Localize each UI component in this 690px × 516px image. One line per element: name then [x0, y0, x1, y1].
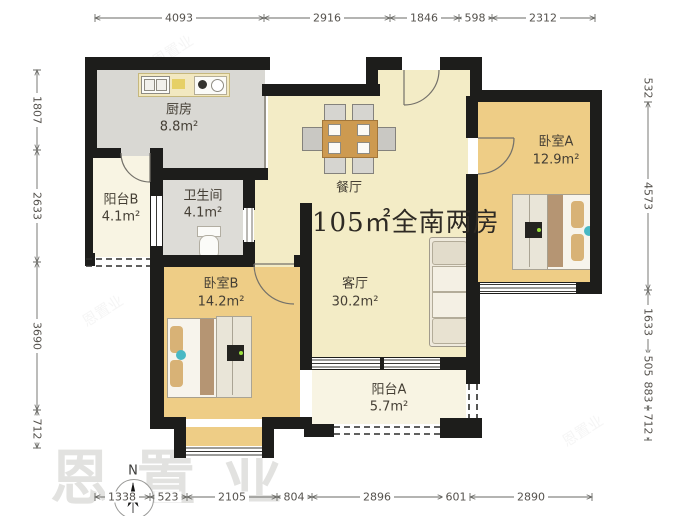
- dim-label: 712: [643, 411, 654, 438]
- dim-label: 4093: [162, 13, 196, 24]
- watermark-diagonal: 恩置业: [78, 290, 127, 332]
- room-label-bathroom: 卫生间: [183, 190, 222, 203]
- dim-label: 3690: [32, 319, 43, 353]
- room-label-bedroom-a: 卧室A: [539, 136, 574, 149]
- room-label-living: 客厅: [342, 278, 368, 291]
- dim-label: 2633: [32, 189, 43, 223]
- bed-blanket: [200, 319, 214, 395]
- dim-label: 4573: [643, 179, 654, 213]
- tv-indicator: [239, 351, 243, 355]
- dim-label: 1633: [643, 305, 654, 339]
- wall: [85, 57, 97, 158]
- wall: [300, 357, 478, 370]
- room-label-balcony-b: 阳台B: [104, 194, 139, 207]
- watermark-diagonal: 恩置业: [558, 410, 607, 452]
- pillow: [571, 234, 584, 261]
- room-area-bedroom-b: 14.2m²: [198, 296, 245, 309]
- stove-burner: [198, 80, 207, 89]
- dining-chair: [302, 127, 323, 151]
- place-setting: [328, 142, 341, 154]
- wall: [85, 155, 93, 257]
- dim-label: 523: [155, 492, 182, 503]
- room-area-balcony-a: 5.7m²: [370, 401, 409, 414]
- wall: [150, 168, 268, 180]
- sofa-cushion: [432, 266, 467, 292]
- wall: [590, 90, 602, 294]
- dim-label: 598: [462, 13, 489, 24]
- wall: [440, 418, 482, 438]
- room-label-dining: 餐厅: [336, 182, 362, 195]
- wall: [466, 96, 478, 138]
- pillow: [170, 326, 183, 353]
- bed-blanket: [548, 195, 563, 267]
- wall: [174, 417, 186, 458]
- dining-chair: [375, 127, 396, 151]
- wall: [85, 253, 95, 266]
- dim-label: 1846: [407, 13, 441, 24]
- wall: [243, 180, 255, 210]
- tv-indicator: [537, 228, 541, 232]
- room-label-balcony-a: 阳台A: [372, 384, 407, 397]
- wall: [300, 203, 312, 370]
- room-area-living: 30.2m²: [332, 296, 379, 309]
- dim-label: 2916: [310, 13, 344, 24]
- dim-label: 601: [443, 492, 470, 503]
- floorplan-canvas: 恩置业 恩置业 恩置业 恩置业 恩置业: [0, 0, 690, 516]
- stove-burner: [211, 79, 224, 92]
- sink-basin: [144, 79, 155, 91]
- compass-north-label: N: [128, 464, 138, 479]
- wall: [85, 57, 270, 70]
- dim-label: 883: [643, 379, 654, 406]
- dim-label: 2896: [360, 492, 394, 503]
- place-setting: [357, 142, 370, 154]
- dim-label: 505: [643, 353, 654, 380]
- dim-label: 1338: [105, 492, 139, 503]
- balcony-b-railing: [86, 259, 150, 266]
- dim-label: 532: [643, 75, 654, 102]
- corridor-floor: [252, 180, 302, 267]
- room-label-bedroom-b: 卧室B: [204, 278, 239, 291]
- dim-label: 2105: [215, 492, 249, 503]
- room-label-kitchen: 厨房: [166, 104, 192, 117]
- dim-label: 712: [32, 416, 43, 443]
- bedroom-b-bay-floor: [186, 427, 262, 447]
- dim-label: 2312: [526, 13, 560, 24]
- wall: [150, 255, 164, 429]
- sink-basin: [156, 79, 167, 91]
- kitchen-dining-edge: [264, 94, 266, 170]
- wall: [150, 148, 163, 267]
- bed-cushion: [176, 350, 186, 360]
- wall: [262, 84, 380, 96]
- wall: [466, 294, 480, 384]
- room-area-kitchen: 8.8m²: [160, 121, 199, 134]
- place-setting: [328, 124, 341, 136]
- wall: [93, 148, 121, 158]
- place-setting: [357, 124, 370, 136]
- wall: [466, 282, 602, 294]
- room-area-balcony-b: 4.1m²: [102, 211, 141, 224]
- sofa-cushion: [432, 292, 467, 318]
- wall: [470, 90, 602, 102]
- wall: [150, 255, 254, 267]
- page-title: 105㎡全南两房: [312, 202, 500, 239]
- dim-label: 1807: [32, 93, 43, 127]
- sofa-cushion: [432, 241, 467, 265]
- wall: [366, 57, 402, 70]
- pillow: [571, 201, 584, 228]
- wall: [304, 424, 334, 437]
- sofa-cushion: [432, 318, 467, 344]
- room-area-bedroom-a: 12.9m²: [533, 154, 580, 167]
- dim-label: 2890: [514, 492, 548, 503]
- cutting-board: [172, 79, 185, 89]
- dim-label: 804: [281, 492, 308, 503]
- room-area-bathroom: 4.1m²: [184, 207, 223, 220]
- pillow: [170, 360, 183, 387]
